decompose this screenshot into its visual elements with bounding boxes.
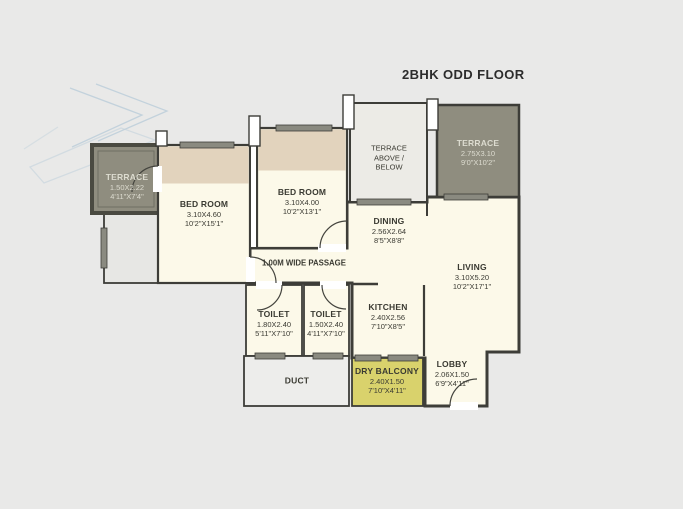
plan-title: 2BHK ODD FLOOR [402, 67, 525, 82]
room-label-lobby: LOBBY 2.06X1.50 6'9"X4'11" [435, 359, 469, 389]
room-label-kitchen: KITCHEN 2.40X2.56 7'10"X8'5" [368, 302, 407, 332]
room-label-toilet-1: TOILET 1.80X2.40 5'11"X7'10" [255, 309, 293, 339]
room-label-bedroom-1: BED ROOM 3.10X4.60 10'2"X15'1" [180, 199, 228, 229]
room-label-duct: DUCT [285, 376, 309, 387]
floor-plan: 2BHK ODD FLOOR TERRACE 1.50X2.22 4'11"X7… [0, 0, 683, 509]
room-label-terrace-above-below: TERRACE ABOVE / BELOW [371, 144, 407, 173]
room-label-dining: DINING 2.56X2.64 8'5"X8'8" [372, 216, 406, 246]
room-label-terrace-left: TERRACE 1.50X2.22 4'11"X7'4" [106, 172, 149, 202]
room-label-toilet-2: TOILET 1.50X2.40 4'11"X7'10" [307, 309, 345, 339]
passage-label: 1.00M WIDE PASSAGE [262, 259, 346, 268]
room-label-dry-balcony: DRY BALCONY 2.40X1.50 7'10"X4'11" [355, 366, 419, 396]
room-label-living: LIVING 3.10X5.20 10'2"X17'1" [453, 262, 491, 292]
floorplan-graphic [0, 0, 683, 509]
room-label-bedroom-2: BED ROOM 3.10X4.00 10'2"X13'1" [278, 187, 326, 217]
room-label-terrace-right: TERRACE 2.75X3.10 9'0"X10'2" [457, 138, 500, 168]
